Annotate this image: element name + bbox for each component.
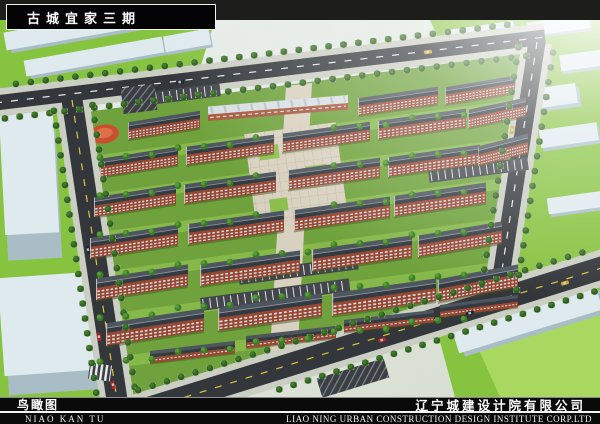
company-name-en: LIAO NING URBAN CONSTRUCTION DESIGN INST… [286, 414, 592, 424]
presentation-board: 古城宜家三期 鸟瞰图 辽宁城建设计院有限公司 NIAO KAN TU LIAO … [0, 0, 600, 424]
title-block-bar: 鸟瞰图 辽宁城建设计院有限公司 NIAO KAN TU LIAO NING UR… [0, 397, 600, 424]
aerial-render [0, 0, 600, 397]
project-title: 古城宜家三期 [27, 8, 141, 27]
view-caption-pinyin: NIAO KAN TU [25, 414, 105, 424]
project-title-banner: 古城宜家三期 [6, 4, 216, 30]
